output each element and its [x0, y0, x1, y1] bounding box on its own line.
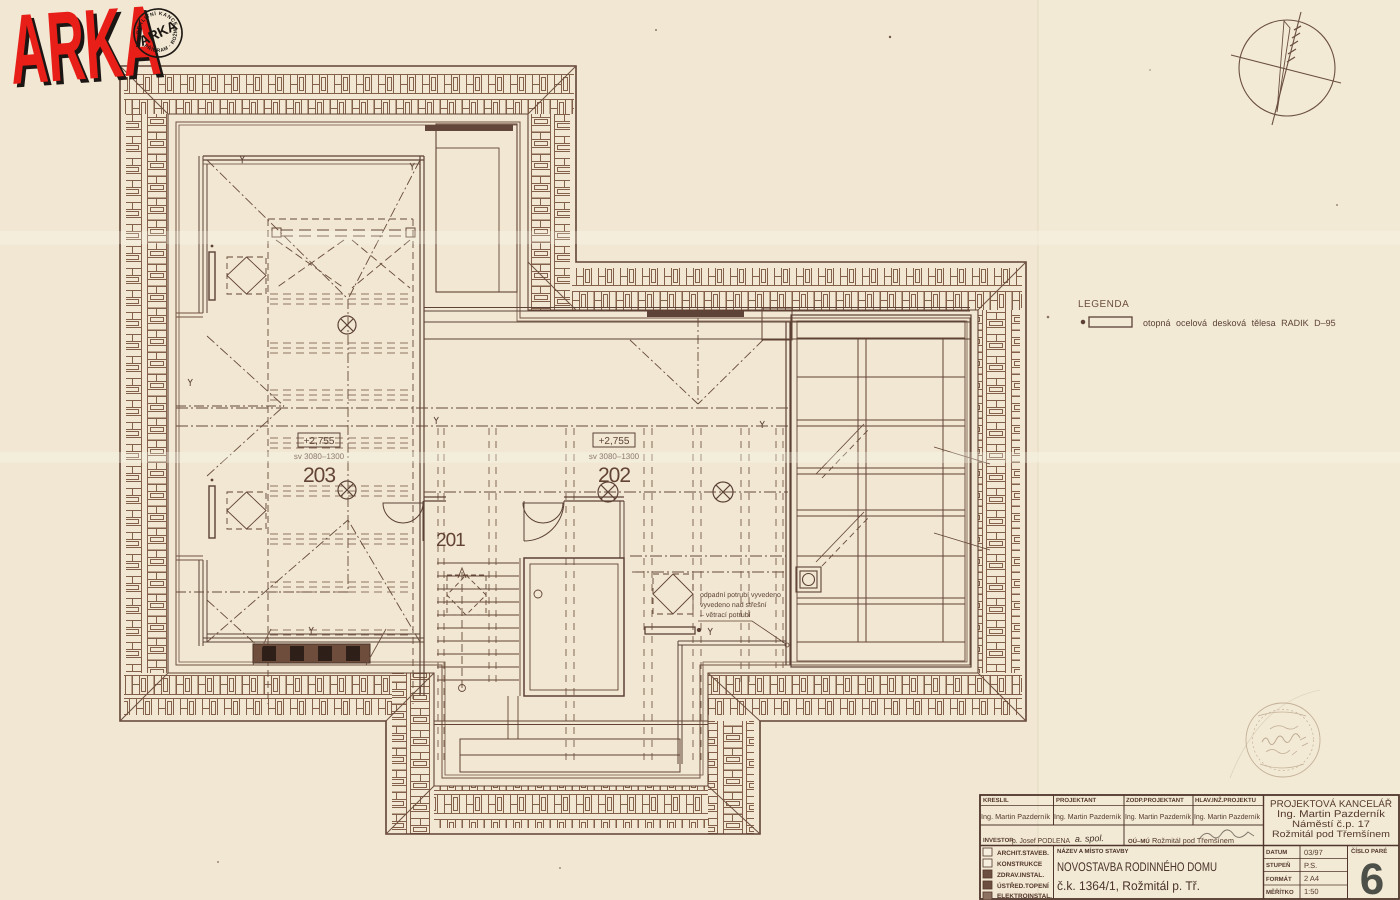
- svg-text:2 A4: 2 A4: [1304, 874, 1319, 883]
- svg-text:STUPEŇ: STUPEŇ: [1266, 861, 1290, 869]
- svg-text:LEGENDA: LEGENDA: [1078, 299, 1129, 310]
- svg-text:odpadní potrubí vyvedeno: odpadní potrubí vyvedeno: [700, 591, 781, 599]
- svg-text:otopná ocelová desková těle: otopná ocelová desková tělesa RADIK D–95: [1143, 318, 1336, 328]
- svg-text:Ing. Martin Pazderník: Ing. Martin Pazderník: [1194, 812, 1260, 821]
- svg-text:ČÍSLO PARÉ: ČÍSLO PARÉ: [1351, 847, 1387, 855]
- svg-text:203: 203: [303, 464, 335, 487]
- svg-text:NOVOSTAVBA RODINNÉHO DOMU: NOVOSTAVBA RODINNÉHO DOMU: [1057, 860, 1217, 874]
- svg-text:PROJEKTANT: PROJEKTANT: [1056, 797, 1097, 804]
- svg-text:202: 202: [598, 464, 630, 487]
- svg-text:Rožmitál pod Třemšínem: Rožmitál pod Třemšínem: [1272, 829, 1390, 839]
- svg-text:6: 6: [1360, 855, 1384, 900]
- svg-text:P.S.: P.S.: [1304, 861, 1317, 870]
- svg-text:KONSTRUKCE: KONSTRUKCE: [997, 861, 1043, 868]
- svg-text:ÚSTŘED.TOPENÍ: ÚSTŘED.TOPENÍ: [997, 882, 1049, 890]
- svg-text:– větrací potrubí: – větrací potrubí: [700, 611, 751, 619]
- svg-text:ARCHIT.STAVEB.: ARCHIT.STAVEB.: [997, 850, 1049, 857]
- svg-text:KRESLIL: KRESLIL: [983, 797, 1009, 804]
- svg-text:ZODP.PROJEKTANT: ZODP.PROJEKTANT: [1126, 797, 1184, 804]
- svg-text:Náměstí č.p. 17: Náměstí č.p. 17: [1292, 819, 1370, 829]
- svg-text:+2,755: +2,755: [599, 436, 630, 447]
- svg-text:Rožmitál pod Třemšínem: Rožmitál pod Třemšínem: [1152, 836, 1234, 845]
- svg-text:Ing. Martin Pazderník: Ing. Martin Pazderník: [981, 812, 1050, 821]
- svg-text:201: 201: [436, 530, 465, 551]
- svg-text:ARKA: ARKA: [6, 0, 164, 105]
- svg-text:MĚŘÍTKO: MĚŘÍTKO: [1266, 888, 1294, 896]
- svg-text:DATUM: DATUM: [1266, 849, 1287, 856]
- svg-text:FORMÁT: FORMÁT: [1266, 875, 1292, 883]
- svg-text:Ing. Martin Pazderník: Ing. Martin Pazderník: [1054, 812, 1121, 821]
- svg-text:a. spol.: a. spol.: [1075, 833, 1104, 844]
- svg-text:Ing. Martin Pazderník: Ing. Martin Pazderník: [1125, 812, 1191, 821]
- svg-text:+2,755: +2,755: [304, 436, 335, 447]
- svg-text:p. Josef PODLENA: p. Josef PODLENA: [1012, 836, 1070, 845]
- svg-text:INVESTOR: INVESTOR: [983, 837, 1014, 844]
- svg-text:č.k. 1364/1, Rožmitál p. Tř.: č.k. 1364/1, Rožmitál p. Tř.: [1057, 879, 1200, 893]
- svg-text:1:50: 1:50: [1304, 887, 1319, 896]
- svg-text:ZDRAV.INSTAL.: ZDRAV.INSTAL.: [997, 872, 1044, 879]
- svg-text:NÁZEV A MÍSTO STAVBY: NÁZEV A MÍSTO STAVBY: [1057, 847, 1129, 855]
- svg-text:OÚ–MÚ: OÚ–MÚ: [1128, 837, 1150, 845]
- svg-text:HLAV.INŽ.PROJEKTU: HLAV.INŽ.PROJEKTU: [1195, 796, 1256, 804]
- svg-text:ELEKTROINSTAL.: ELEKTROINSTAL.: [997, 893, 1052, 900]
- svg-text:vyvedeno nad střešní: vyvedeno nad střešní: [700, 601, 767, 609]
- svg-text:03/97: 03/97: [1304, 848, 1323, 857]
